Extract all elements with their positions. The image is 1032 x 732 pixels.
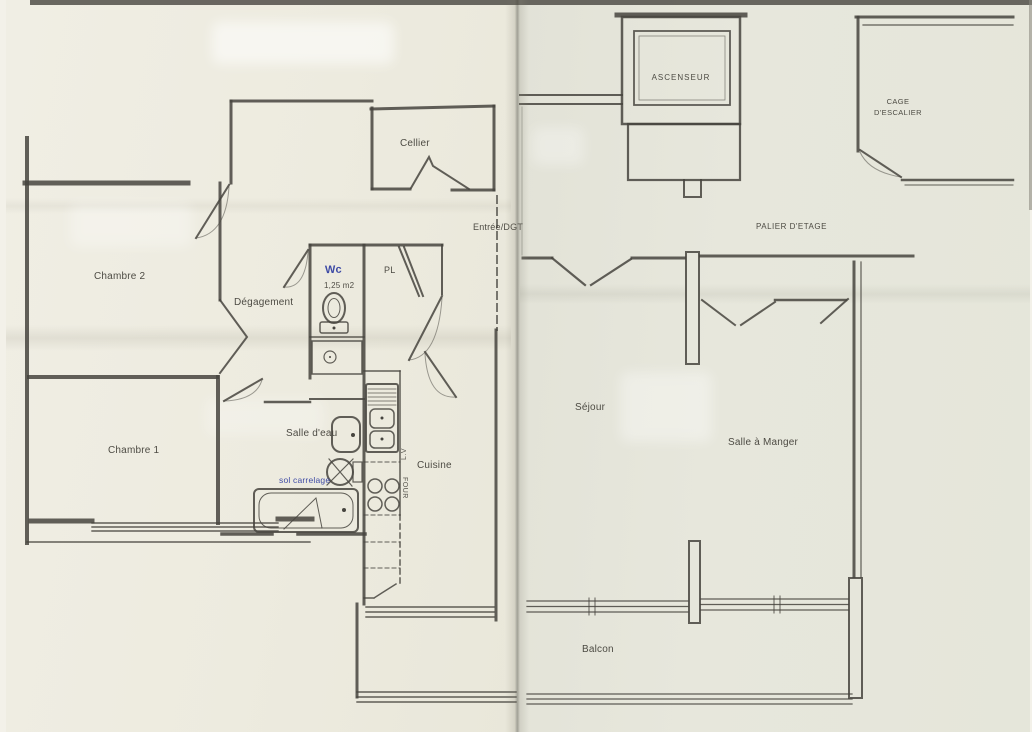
note-sol-carrelage: sol carrelage: [279, 475, 330, 485]
living-walls: [523, 252, 913, 704]
salle-a-manger-window: [700, 599, 852, 610]
wc-door: [284, 250, 308, 287]
room-label-cage-escalier-2: D'ESCALIER: [855, 108, 941, 117]
hand-basin-icon: [312, 341, 362, 374]
page-fold-shadow: [505, 0, 529, 732]
salle-a-manger-double-door: [702, 300, 775, 325]
sejour-double-door: [552, 258, 631, 285]
stairwell-door: [860, 150, 901, 177]
pier: [686, 252, 699, 364]
room-label-salle-deau: Salle d'eau: [286, 428, 337, 439]
cuisine-window: [366, 607, 494, 617]
bathtub-icon: [254, 489, 358, 532]
chambre1-window: [92, 523, 278, 531]
cuisine-door: [425, 352, 456, 397]
window-pier: [689, 541, 700, 623]
room-label-wc: Wc: [325, 264, 342, 277]
label-wc-area: 1,25 m2: [324, 281, 354, 290]
room-label-ascenseur: ASCENSEUR: [622, 73, 740, 82]
room-label-chambre2: Chambre 2: [94, 271, 145, 282]
corner-door: [821, 299, 848, 323]
balcony-rail: [527, 694, 852, 704]
cellier-door: [411, 157, 469, 189]
room-label-sejour: Séjour: [575, 402, 605, 413]
loggia-rail: [357, 692, 516, 702]
left-apartment-walls: [25, 101, 516, 702]
toilet-icon: [320, 293, 348, 333]
landing-walls: [520, 95, 622, 255]
room-label-cage-escalier-1: CAGE: [855, 97, 941, 106]
elevator-shaft: [617, 15, 745, 197]
sejour-window: [527, 601, 688, 612]
room-label-salle-a-manger: Salle à Manger: [728, 437, 798, 448]
cooktop-icon: [368, 479, 399, 511]
scanned-floor-plan: Cellier Entrée/DGT Chambre 2 Dégagement …: [0, 0, 1032, 732]
room-label-cellier: Cellier: [400, 138, 430, 149]
kitchen-sink-icon: [366, 384, 398, 452]
room-label-degagement: Dégagement: [234, 297, 293, 308]
round-sink-icon: [327, 459, 362, 486]
balcony-pier: [849, 578, 862, 698]
label-lave-vaisselle: L.V: [401, 448, 408, 460]
room-label-balcon: Balcon: [582, 644, 614, 655]
room-label-chambre1: Chambre 1: [108, 445, 159, 456]
label-four: FOUR: [401, 477, 408, 499]
kitchen-counter: [364, 371, 400, 598]
placard-door: [399, 247, 423, 296]
label-palier-etage: PALIER D'ETAGE: [756, 222, 827, 231]
room-label-placard: PL: [384, 265, 395, 275]
room-label-cuisine: Cuisine: [417, 460, 452, 471]
chambre2-door: [220, 300, 247, 373]
